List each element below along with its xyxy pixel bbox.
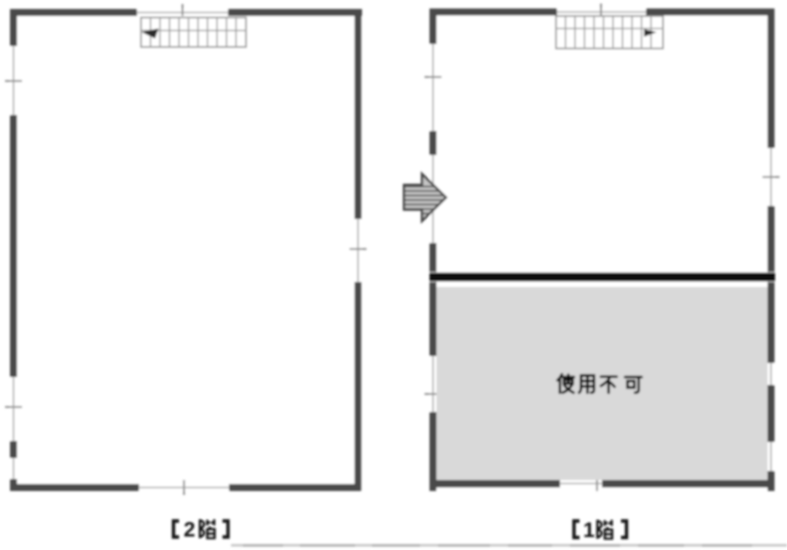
svg-text:2: 2 — [184, 519, 196, 542]
svg-text:1: 1 — [583, 519, 595, 542]
